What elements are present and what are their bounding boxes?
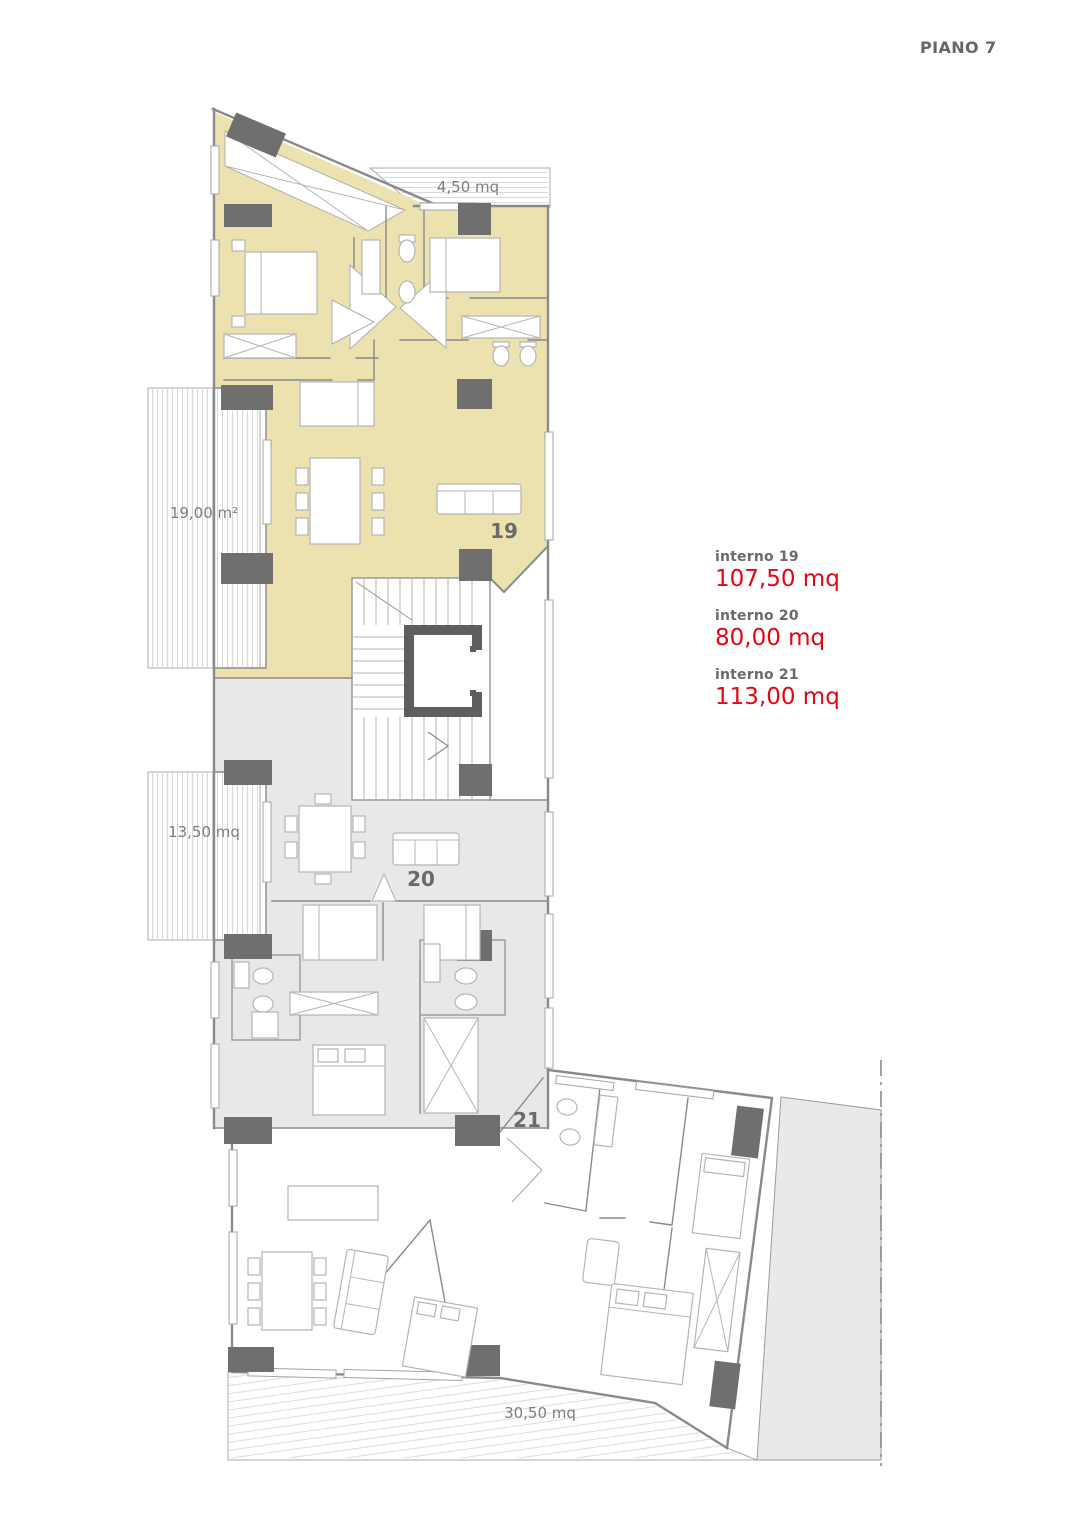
- door-swing: [507, 1138, 542, 1202]
- dining-table: [262, 1252, 312, 1330]
- window: [263, 802, 271, 882]
- window: [545, 914, 553, 998]
- chair: [296, 493, 308, 510]
- window: [545, 432, 553, 540]
- chair: [315, 794, 331, 804]
- bidet-icon: [253, 996, 273, 1012]
- pillar: [459, 764, 492, 796]
- chair: [353, 816, 365, 832]
- apartment-20-number: 20: [407, 867, 435, 891]
- pillar: [459, 549, 492, 581]
- pillar: [455, 1115, 500, 1146]
- pillow: [345, 1049, 365, 1062]
- chair: [285, 816, 297, 832]
- toilet-icon: [253, 968, 273, 984]
- shower: [252, 1012, 278, 1038]
- window: [229, 1232, 237, 1324]
- chair: [314, 1283, 326, 1300]
- apartment-21-number: 21: [513, 1108, 541, 1132]
- pillar: [709, 1361, 740, 1410]
- window: [263, 440, 271, 524]
- window: [545, 1008, 553, 1068]
- chair: [314, 1258, 326, 1275]
- bed: [303, 905, 377, 960]
- dining-table: [310, 458, 360, 544]
- toilet-icon: [520, 346, 536, 366]
- dining-table: [299, 806, 351, 872]
- cabinet: [362, 240, 380, 294]
- shower-body: [582, 1238, 619, 1286]
- bed: [692, 1153, 749, 1238]
- bidet-icon: [399, 281, 415, 303]
- terrace-west-20: 13,50 mq: [148, 772, 260, 940]
- toilet-icon: [556, 1098, 578, 1116]
- pillow: [318, 1049, 338, 1062]
- floor-plan-drawing: 19,00 m² 13,50 mq 4,50 mq 30,50 mq: [0, 0, 1086, 1536]
- nightstand: [232, 316, 245, 327]
- floor-plan-page: PIANO 7 interno 19 107,50 mq interno 20 …: [0, 0, 1086, 1536]
- terrace-hatch: [149, 389, 259, 667]
- pillar: [224, 204, 272, 227]
- sofa: [333, 1249, 388, 1335]
- chair: [248, 1258, 260, 1275]
- elevator-door-jamb: [470, 646, 476, 652]
- chair: [372, 493, 384, 510]
- washbasin: [424, 944, 440, 982]
- chair: [296, 518, 308, 535]
- terrace-area-label: 13,50 mq: [168, 823, 240, 841]
- chair: [248, 1308, 260, 1325]
- window: [636, 1082, 714, 1099]
- chair: [296, 468, 308, 485]
- toilet-icon: [399, 240, 415, 262]
- chair: [372, 518, 384, 535]
- bed: [245, 252, 317, 314]
- bed: [300, 382, 374, 426]
- apartment-19-number: 19: [490, 519, 518, 543]
- chair: [353, 842, 365, 858]
- chair: [372, 468, 384, 485]
- pillar: [457, 379, 492, 409]
- terrace-west-19: 19,00 m²: [148, 388, 260, 668]
- nightstand: [232, 240, 245, 251]
- pillar: [228, 1347, 274, 1372]
- adjacent-roof: [757, 1097, 881, 1460]
- terrace-area-label: 30,50 mq: [504, 1404, 576, 1422]
- bidet-icon: [493, 346, 509, 366]
- wardrobe: [694, 1248, 740, 1351]
- pillar: [224, 1117, 272, 1144]
- bed: [430, 238, 500, 292]
- elevator-door-opening: [472, 650, 484, 692]
- pillar: [458, 203, 491, 235]
- window: [211, 240, 219, 296]
- window: [211, 962, 219, 1018]
- terrace-area-label: 19,00 m²: [170, 504, 238, 522]
- sofa: [437, 484, 521, 514]
- pillar: [221, 385, 273, 410]
- window: [211, 146, 219, 194]
- window: [211, 1044, 219, 1108]
- shower: [582, 1238, 619, 1286]
- pillow: [643, 1292, 667, 1309]
- sofa: [393, 833, 459, 865]
- chair: [285, 842, 297, 858]
- pillar: [731, 1106, 764, 1159]
- pillow: [616, 1289, 640, 1306]
- elevator-cab: [414, 635, 472, 707]
- chair: [314, 1308, 326, 1325]
- pillar: [221, 553, 273, 584]
- chair: [248, 1283, 260, 1300]
- window: [545, 812, 553, 896]
- pillar: [224, 934, 272, 959]
- kitchen-island: [288, 1186, 378, 1220]
- terrace-hatch: [149, 773, 259, 939]
- bed: [402, 1297, 477, 1377]
- pillow: [440, 1306, 460, 1321]
- bed: [601, 1283, 694, 1384]
- window: [229, 1150, 237, 1206]
- pillow: [417, 1302, 437, 1317]
- window: [545, 600, 553, 778]
- adjacent-area: [757, 1060, 881, 1466]
- elevator-door-jamb: [470, 690, 476, 696]
- pillar: [224, 760, 272, 785]
- bidet-icon: [559, 1128, 581, 1146]
- toilet-icon: [455, 968, 477, 984]
- washbasin: [234, 962, 249, 988]
- elevator: [404, 625, 484, 717]
- balcony-area-label: 4,50 mq: [437, 178, 499, 196]
- bidet-icon: [455, 994, 477, 1010]
- sofa-body: [333, 1249, 388, 1335]
- chair: [315, 874, 331, 884]
- bed-body: [402, 1297, 477, 1377]
